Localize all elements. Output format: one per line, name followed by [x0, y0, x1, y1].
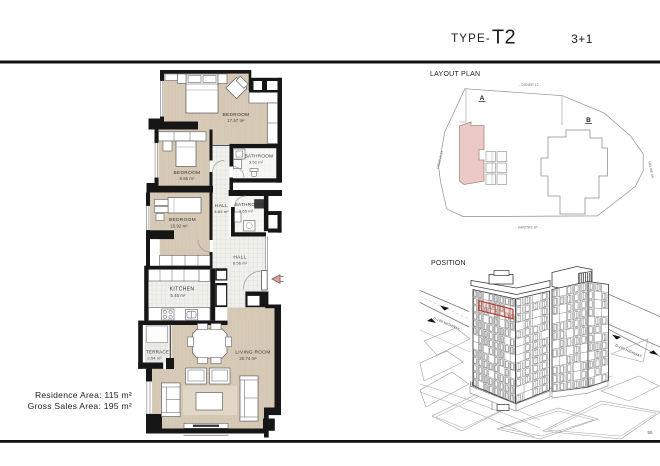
svg-text:2.54 m²: 2.54 m² [147, 356, 162, 361]
svg-text:3+1: 3+1 [571, 32, 593, 46]
svg-text:Residence Area: 115 m²: Residence Area: 115 m² [35, 390, 132, 400]
svg-text:8.56 m²: 8.56 m² [233, 261, 248, 266]
svg-text:17.57 m²: 17.57 m² [227, 118, 245, 123]
svg-text:A: A [480, 95, 485, 102]
svg-text:D-100 HIGHWAY: D-100 HIGHWAY [433, 316, 461, 331]
svg-text:BATHROOM: BATHROOM [235, 202, 264, 207]
svg-text:LIVING ROOM: LIVING ROOM [235, 350, 270, 356]
svg-text:KITCHEN: KITCHEN [170, 287, 195, 293]
svg-text:POSITION: POSITION [431, 260, 466, 267]
svg-text:10.92 m²: 10.92 m² [170, 224, 188, 229]
svg-text:B: B [586, 117, 591, 124]
svg-text:MELINE SA: MELINE SA [647, 161, 655, 179]
svg-text:Gross Sales Area: 195 m²: Gross Sales Area: 195 m² [28, 401, 132, 411]
svg-text:- SANITAS ST -: - SANITAS ST - [516, 226, 541, 230]
svg-text:3.52 m²: 3.52 m² [249, 160, 264, 165]
svg-text:FIRDEVS ST: FIRDEVS ST [436, 150, 445, 169]
svg-text:8.65 m²: 8.65 m² [180, 176, 195, 181]
svg-text:TYPE-: TYPE- [451, 33, 491, 45]
svg-text:4.83 m²: 4.83 m² [214, 209, 229, 214]
svg-text:20.74 m²: 20.74 m² [239, 356, 257, 361]
svg-text:LAYOUT PLAN: LAYOUT PLAN [430, 71, 480, 78]
svg-text:- DÖNER 12 -: - DÖNER 12 - [519, 83, 541, 87]
svg-text:BEDROOM: BEDROOM [169, 217, 196, 223]
svg-text:T2: T2 [492, 27, 516, 49]
svg-text:55: 55 [647, 430, 653, 435]
svg-text:5.45 m²: 5.45 m² [171, 293, 186, 298]
svg-text:3.65 m²: 3.65 m² [239, 209, 254, 214]
svg-text:BATHROOM: BATHROOM [245, 154, 274, 159]
svg-text:TERRACE: TERRACE [146, 350, 169, 355]
